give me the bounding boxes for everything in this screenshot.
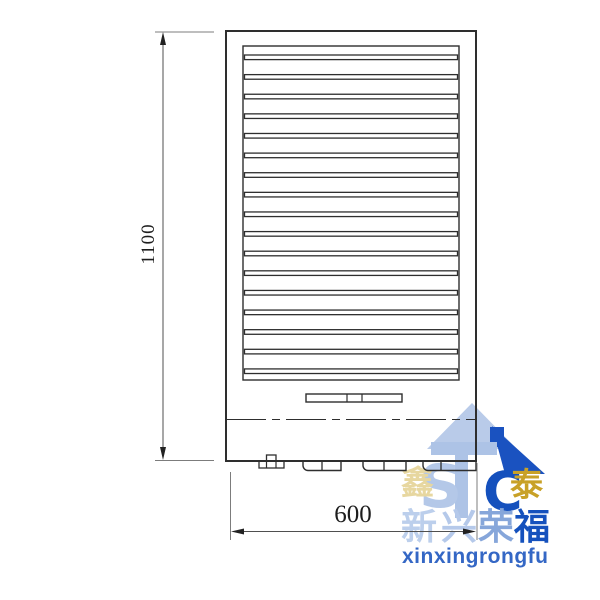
height-arrow-down — [160, 447, 166, 460]
louver-slat — [245, 212, 458, 217]
louver-slat — [245, 369, 458, 374]
louver-slat — [245, 271, 458, 276]
width-arrow-right — [463, 529, 476, 535]
louver-slat — [245, 153, 458, 158]
drawing-canvas: S C 鑫 泰 新 兴 荣 福 xinxingrongfu — [0, 0, 600, 600]
louver-slat — [245, 173, 458, 178]
louver-slat — [245, 232, 458, 237]
louver-slat — [245, 310, 458, 315]
louver-slat — [245, 330, 458, 335]
louver-slat — [245, 114, 458, 119]
louver-slats — [245, 55, 458, 374]
louver-slat — [245, 75, 458, 80]
louver-slat — [245, 192, 458, 197]
foot-bracket-3 — [423, 461, 476, 471]
louver-slat — [245, 290, 458, 295]
height-arrow-up — [160, 32, 166, 45]
louver-slat — [245, 133, 458, 138]
louver-slat — [245, 251, 458, 256]
handle-rect — [306, 394, 402, 402]
louver-slat — [245, 94, 458, 99]
valve-body-box — [259, 461, 284, 468]
width-dimension-label: 600 — [331, 501, 375, 527]
height-dimension-label: 1100 — [138, 218, 158, 270]
louver-slat — [245, 349, 458, 354]
cad-linework — [0, 0, 600, 600]
width-arrow-left — [231, 529, 244, 535]
louver-slat — [245, 55, 458, 60]
